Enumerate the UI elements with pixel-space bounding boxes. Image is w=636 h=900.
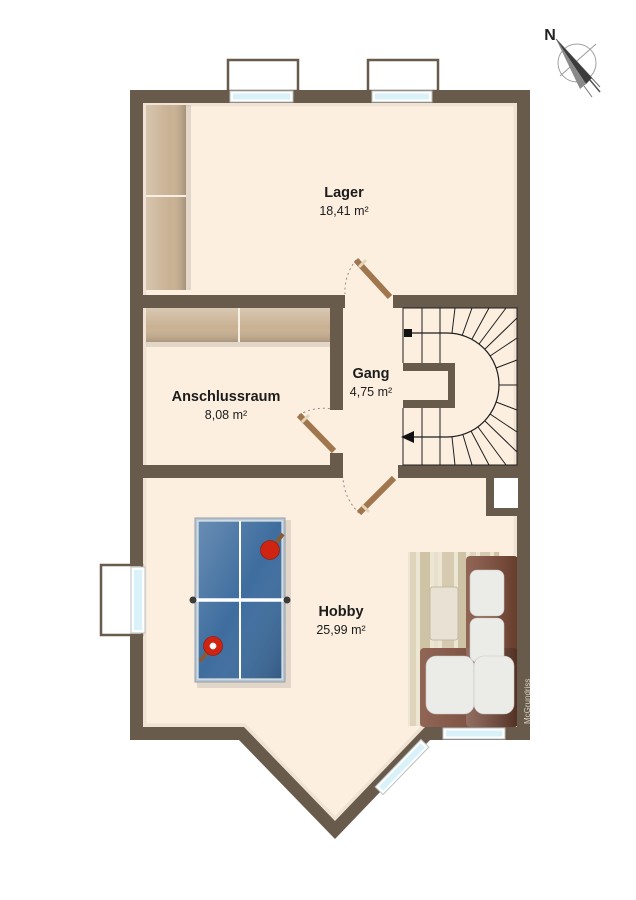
room-anschlussraum-label: Anschlussraum: [172, 389, 281, 405]
wall-anschluss-bottom: [143, 465, 343, 478]
wall-lager-left: [143, 295, 345, 308]
table-tennis-table: [190, 518, 292, 688]
chimney-wall-bottom: [486, 508, 530, 516]
compass-north-label: N: [544, 27, 556, 44]
wall-stair-bottom: [398, 465, 530, 478]
chimney-shaft: [494, 478, 518, 508]
ball-icon: [210, 643, 216, 649]
floor-plan-page: Lager 18,41 m² Anschlussraum 8,08 m² Gan…: [0, 0, 636, 900]
wall-anschluss-vertical: [330, 295, 343, 410]
room-gang-area: 4,75 m²: [350, 385, 392, 399]
room-gang-label: Gang: [352, 366, 389, 382]
room-anschlussraum-area: 8,08 m²: [205, 408, 247, 422]
room-lager-label: Lager: [324, 185, 364, 201]
watermark: McGrundriss: [523, 679, 532, 724]
stair-walkline-start-marker: [404, 329, 412, 337]
coffee-table: [430, 587, 458, 640]
wall-lager-right: [393, 295, 530, 308]
room-hobby-label: Hobby: [318, 604, 363, 620]
window-top-right: [368, 60, 438, 102]
room-hobby-area: 25,99 m²: [316, 623, 365, 637]
window-top-left: [228, 60, 298, 102]
room-lager-area: 18,41 m²: [319, 204, 368, 218]
compass-icon: N: [544, 27, 600, 97]
floor-plan-drawing: Lager 18,41 m² Anschlussraum 8,08 m² Gan…: [0, 0, 636, 900]
wardrobe: [146, 105, 191, 290]
window-hobby-left: [101, 565, 145, 635]
sideboard: [146, 308, 330, 347]
window-hobby-bottom: [443, 728, 505, 739]
